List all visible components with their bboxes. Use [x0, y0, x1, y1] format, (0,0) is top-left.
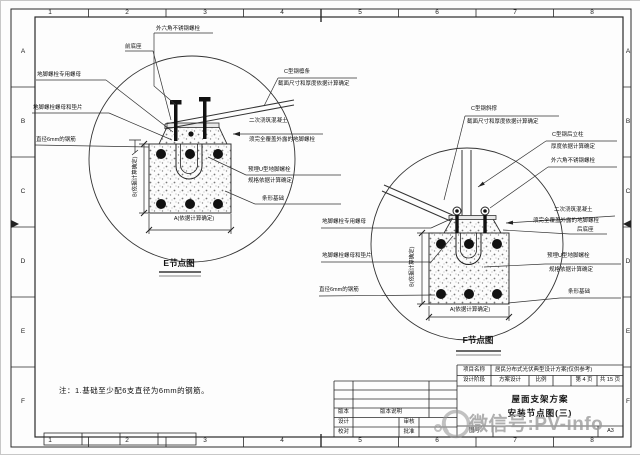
label-rear-column-note: 厚度依据计算确定: [551, 144, 595, 150]
label-strip-foundation-f: 条形基础: [568, 289, 590, 295]
detail-f-title: F节点图: [441, 334, 515, 346]
zone-col-5-bottom: 5: [350, 438, 370, 445]
zone-row-d-left: D: [17, 259, 29, 266]
zone-row-e-left: E: [17, 329, 29, 336]
label-u-bolt-e: 预埋U型地脚螺栓: [248, 167, 290, 173]
label-u-bolt-note-e: 规格依据计算确定: [248, 178, 292, 184]
label-anchor-nut-f: 地脚螺栓专用螺母: [322, 219, 366, 225]
zone-col-2-bottom: 2: [117, 438, 137, 445]
label-u-bolt-note-f: 规格依据计算确定: [549, 267, 593, 273]
zone-col-4-top: 4: [272, 10, 292, 17]
label-rebar-f: 直径6mm的钢筋: [319, 287, 359, 293]
label-purlin-note: 截面尺寸和厚度依据计算确定: [278, 81, 350, 87]
zone-col-5-top: 5: [350, 10, 370, 17]
dim-a-f: A(依据计算确定): [431, 308, 509, 314]
zone-col-4-bottom: 4: [272, 438, 292, 445]
detail-e-title: E节点图: [141, 257, 217, 269]
drawing-title-line1: 屋面支架方案: [457, 393, 623, 405]
zone-row-c-right: C: [623, 189, 633, 196]
zone-col-6-top: 6: [427, 10, 447, 17]
label-front-base: 前底座: [125, 44, 142, 50]
zone-row-b-right: B: [623, 119, 633, 126]
page-total: 共 15 页: [597, 378, 623, 384]
label-nut-washer-f: 地脚螺栓螺母和垫片: [322, 253, 372, 259]
zone-col-3-top: 3: [195, 10, 215, 17]
label-secondary-concrete-note-f: 须完全覆盖外露的地脚螺栓: [533, 218, 599, 224]
zone-col-8-bottom: 8: [582, 438, 602, 445]
zone-col-3-bottom: 3: [195, 438, 215, 445]
zone-row-a-right: A: [623, 49, 633, 56]
zone-col-1-top: 1: [40, 10, 60, 17]
design-stage-label: 设计阶段: [458, 378, 490, 384]
watermark-text: 微信号:PV-info: [469, 409, 603, 436]
label-secondary-concrete-f: 二次浇筑混凝土: [554, 207, 593, 213]
zone-row-b-left: B: [17, 119, 29, 126]
checker-label: 校对: [335, 430, 352, 436]
dim-b-f: B(依据计算确定): [410, 232, 416, 302]
version-desc-label: 版本说明: [354, 410, 428, 416]
zone-row-d-right: D: [623, 259, 633, 266]
zone-row-e-right: E: [623, 329, 633, 336]
label-hex-bolt-f: 外六角不锈钢螺栓: [551, 158, 595, 164]
zone-col-7-top: 7: [505, 10, 525, 17]
version-label: 版本: [335, 410, 352, 416]
dim-a-e: A(依据计算确定): [155, 217, 233, 223]
general-note: 注：1.基础至少配6支直径为6mm的钢筋。: [59, 385, 209, 396]
zone-row-a-left: A: [17, 49, 29, 56]
zone-row-c-left: C: [17, 189, 29, 196]
label-brace: C型钢斜撑: [471, 106, 497, 112]
zone-row-f-left: F: [17, 399, 29, 406]
reviewer-label: 审核: [400, 420, 418, 426]
label-u-bolt-f: 预埋U型地脚螺栓: [547, 253, 589, 259]
designer-label: 设计: [335, 420, 352, 426]
zone-col-6-bottom: 6: [427, 438, 447, 445]
label-anchor-nut-e: 地脚螺栓专用螺母: [37, 72, 81, 78]
scale-label: 比例: [530, 378, 552, 384]
zone-row-f-right: F: [623, 399, 633, 406]
label-purlin: C型钢檩条: [284, 69, 310, 75]
design-stage-value: 方案设计: [492, 378, 528, 384]
cad-drawing-sheet: 1 2 3 4 5 6 7 8 1 2 3 4 5 6 7 8 A B C D …: [0, 0, 640, 455]
label-strip-foundation-e: 条形基础: [262, 196, 284, 202]
label-rear-base: 后底座: [577, 227, 594, 233]
label-secondary-concrete-note-e: 须完全覆盖外露的地脚螺栓: [249, 137, 315, 143]
dim-b-e: B(依据计算确定): [133, 142, 139, 212]
project-name-value: 居民分布式光伏典型设计方案(仅供参考): [495, 368, 592, 374]
detail-f-linework: [319, 116, 621, 355]
label-nut-washer-e: 地脚螺栓螺母和垫片: [33, 105, 83, 111]
label-rear-column: C型钢后立柱: [552, 132, 583, 138]
label-rebar-e: 直径6mm的钢筋: [36, 137, 76, 143]
zone-col-7-bottom: 7: [505, 438, 525, 445]
label-hex-bolt-e: 外六角不锈钢螺栓: [156, 26, 200, 32]
label-brace-note: 截面尺寸和厚度依据计算确定: [467, 119, 539, 125]
approver-label: 批准: [400, 430, 418, 436]
zone-col-8-top: 8: [582, 10, 602, 17]
label-secondary-concrete-e: 二次浇筑混凝土: [249, 118, 288, 124]
zone-col-2-top: 2: [117, 10, 137, 17]
page-number: 第 4 页: [571, 378, 597, 384]
zone-col-1-bottom: 1: [40, 438, 60, 445]
project-name-label: 项目名称: [458, 368, 490, 374]
